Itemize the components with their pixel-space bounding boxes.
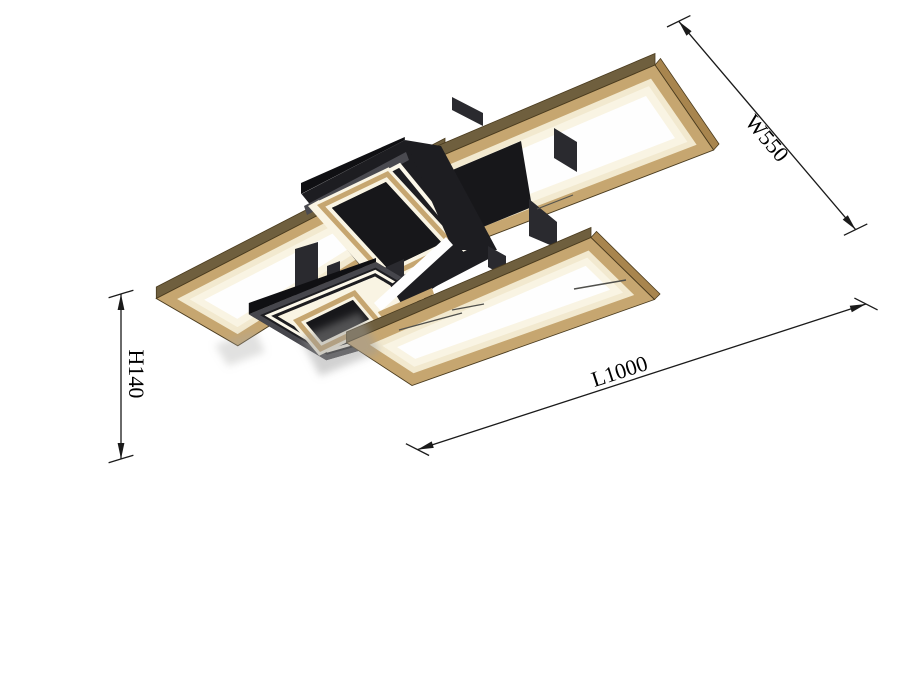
svg-text:H140: H140 [124,350,149,399]
